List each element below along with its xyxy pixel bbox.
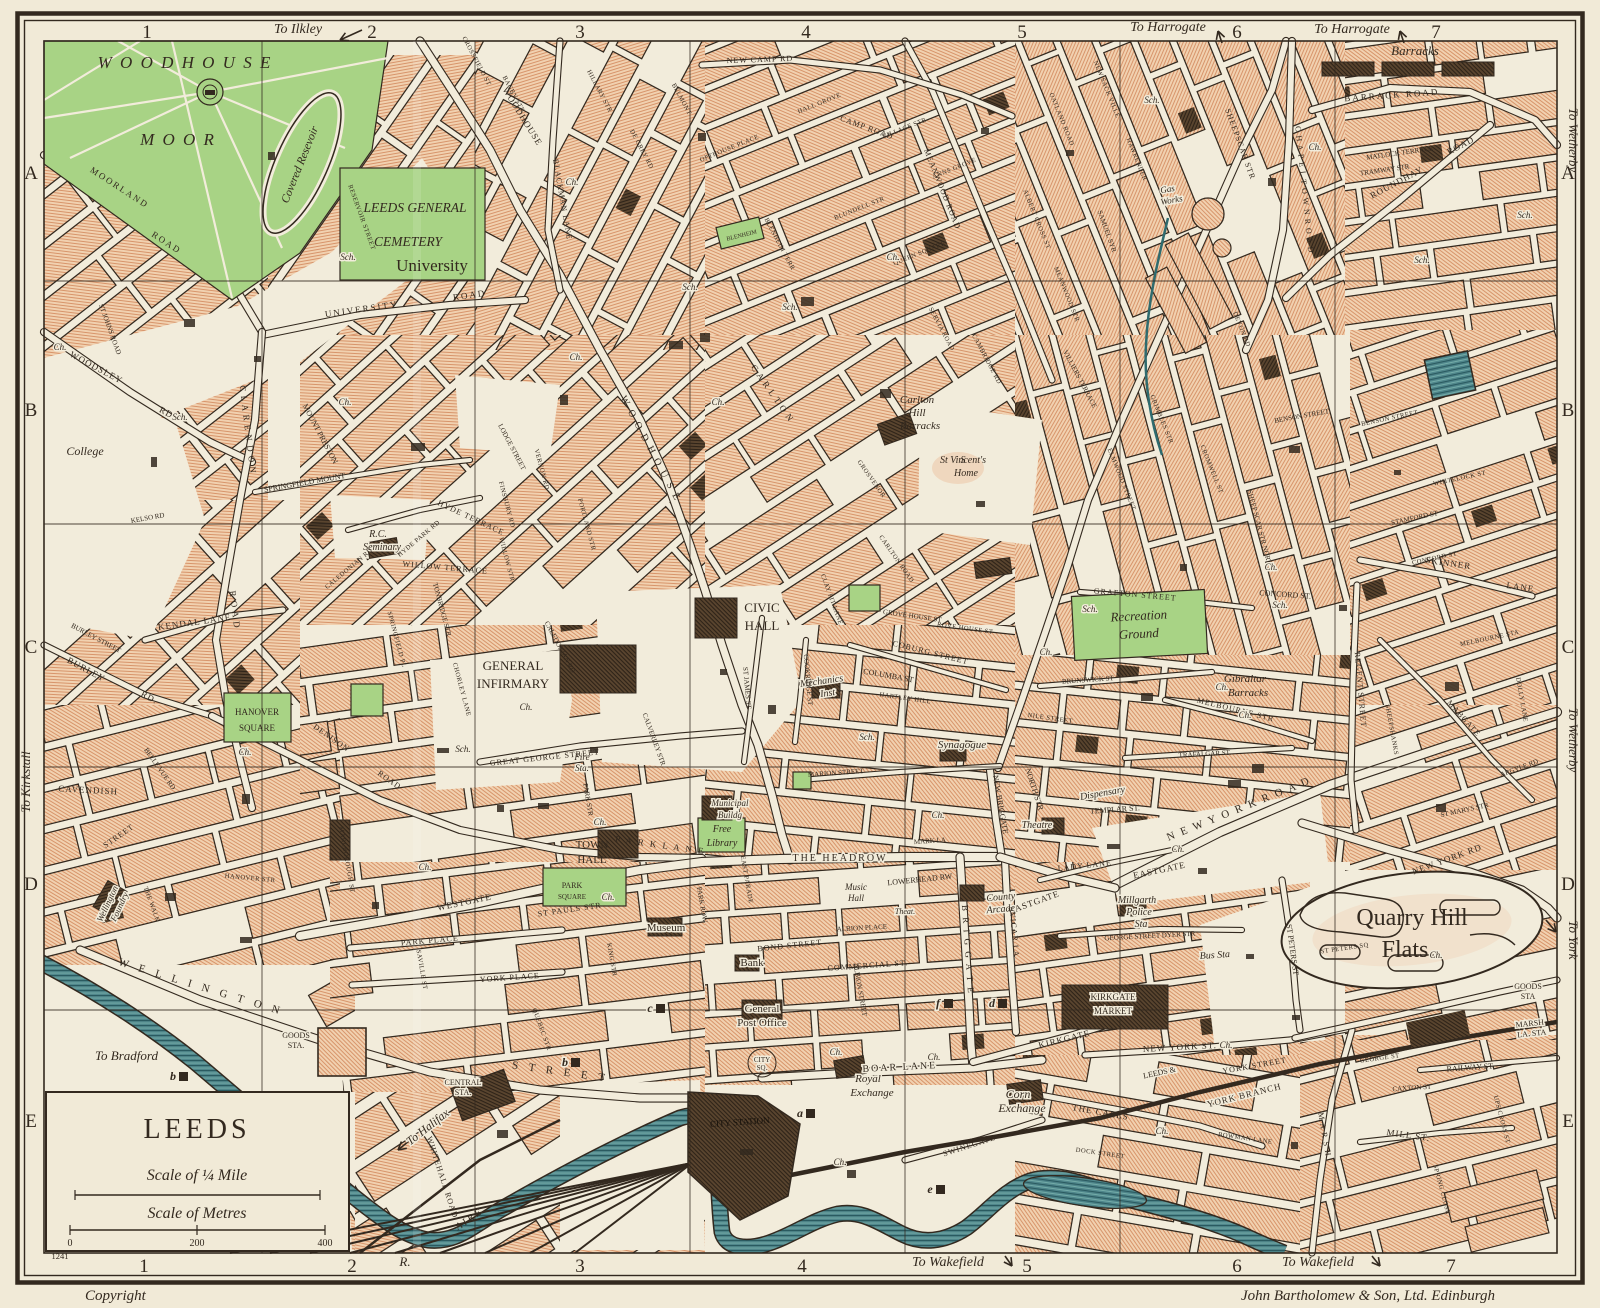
- svg-text:Ch.: Ch.: [1216, 682, 1229, 692]
- svg-text:4: 4: [797, 1256, 807, 1277]
- svg-text:3: 3: [575, 1256, 585, 1277]
- svg-text:Royal: Royal: [854, 1073, 881, 1085]
- svg-text:200: 200: [190, 1238, 205, 1249]
- svg-text:CEMETERY: CEMETERY: [374, 234, 443, 249]
- svg-text:Ch.: Ch.: [887, 252, 900, 262]
- svg-text:Barracks: Barracks: [900, 420, 940, 432]
- svg-text:Scale of ¼ Mile: Scale of ¼ Mile: [147, 1167, 247, 1184]
- svg-text:Sch.: Sch.: [782, 302, 797, 312]
- svg-text:1241: 1241: [52, 1251, 69, 1261]
- svg-text:c: c: [647, 1001, 653, 1015]
- svg-text:D: D: [24, 874, 38, 895]
- svg-text:Sch.: Sch.: [340, 252, 355, 262]
- svg-text:Sch.: Sch.: [1082, 604, 1097, 614]
- svg-text:b: b: [562, 1055, 568, 1069]
- svg-text:1: 1: [139, 1256, 149, 1277]
- svg-text:B: B: [25, 400, 38, 421]
- svg-text:SQ.: SQ.: [757, 1064, 768, 1072]
- svg-text:Ch.: Ch.: [1239, 710, 1252, 720]
- svg-text:1: 1: [142, 22, 152, 43]
- svg-text:Ch.: Ch.: [339, 397, 352, 407]
- svg-text:E: E: [1562, 1111, 1574, 1132]
- svg-text:College: College: [66, 444, 104, 458]
- svg-text:a: a: [797, 1106, 803, 1120]
- svg-text:John Bartholomew & Son, Ltd. E: John Bartholomew & Son, Ltd. Edinburgh: [1241, 1288, 1495, 1304]
- svg-text:To Harrogate: To Harrogate: [1130, 20, 1206, 35]
- svg-text:e: e: [927, 1182, 933, 1196]
- svg-text:Ch.: Ch.: [239, 747, 252, 757]
- svg-text:CIVIC: CIVIC: [744, 600, 779, 615]
- svg-text:Bus Sta: Bus Sta: [1199, 949, 1230, 962]
- svg-text:GOODS: GOODS: [282, 1031, 310, 1040]
- svg-text:400: 400: [318, 1238, 333, 1249]
- svg-text:To Wetherby: To Wetherby: [1566, 108, 1581, 173]
- svg-text:Corn: Corn: [1006, 1087, 1031, 1101]
- svg-text:Ch.: Ch.: [830, 1047, 843, 1057]
- svg-text:To Wetherby: To Wetherby: [1566, 708, 1581, 773]
- svg-text:Ch.: Ch.: [928, 1052, 941, 1062]
- svg-text:5: 5: [1022, 1256, 1032, 1277]
- svg-text:Sta.: Sta.: [575, 763, 589, 773]
- svg-text:Ch.: Ch.: [520, 702, 533, 712]
- svg-text:LEEDS GENERAL: LEEDS GENERAL: [362, 200, 466, 215]
- svg-text:Ch.: Ch.: [1220, 1040, 1233, 1050]
- svg-text:CENTRAL: CENTRAL: [445, 1078, 482, 1087]
- svg-text:2: 2: [367, 22, 377, 43]
- svg-text:Post Office: Post Office: [737, 1017, 787, 1029]
- svg-text:Scale of Metres: Scale of Metres: [148, 1205, 247, 1222]
- svg-text:6: 6: [1232, 1256, 1242, 1277]
- svg-text:HALL: HALL: [577, 854, 607, 866]
- svg-text:Sch.: Sch.: [1414, 255, 1429, 265]
- svg-text:0: 0: [68, 1238, 73, 1249]
- svg-text:Home: Home: [953, 468, 978, 479]
- svg-text:B: B: [1562, 400, 1575, 421]
- svg-text:STA: STA: [1521, 992, 1536, 1001]
- svg-text:Ch.: Ch.: [1265, 562, 1278, 572]
- svg-text:C: C: [1562, 637, 1575, 658]
- svg-text:Gibraltar: Gibraltar: [1224, 673, 1267, 685]
- svg-text:Ch.: Ch.: [1309, 142, 1322, 152]
- svg-text:Ch.: Ch.: [594, 817, 607, 827]
- svg-text:Inst: Inst: [818, 687, 836, 700]
- svg-text:Ch.: Ch.: [566, 177, 579, 187]
- svg-text:5: 5: [1017, 22, 1027, 43]
- svg-text:Hill: Hill: [907, 407, 925, 419]
- svg-text:R.: R.: [398, 1254, 410, 1269]
- svg-text:CITY: CITY: [754, 1056, 770, 1064]
- svg-text:Ch.: Ch.: [834, 1157, 847, 1167]
- svg-text:MARKET: MARKET: [1094, 1006, 1133, 1016]
- svg-text:7: 7: [1446, 1256, 1456, 1277]
- svg-text:7: 7: [1431, 22, 1441, 43]
- svg-text:Sta: Sta: [1135, 919, 1148, 930]
- svg-text:Ch.: Ch.: [54, 342, 67, 352]
- svg-text:TOWN: TOWN: [576, 839, 609, 851]
- svg-text:Library: Library: [706, 838, 738, 849]
- svg-text:Barracks: Barracks: [1228, 687, 1268, 699]
- svg-text:To Wakefield: To Wakefield: [912, 1255, 985, 1270]
- svg-text:D: D: [1561, 874, 1575, 895]
- svg-text:Exchange: Exchange: [997, 1101, 1046, 1115]
- svg-text:SQUARE: SQUARE: [558, 893, 586, 901]
- svg-text:INFIRMARY: INFIRMARY: [477, 676, 550, 691]
- svg-text:Carlton: Carlton: [900, 394, 935, 406]
- svg-text:Ch.: Ch.: [932, 810, 945, 820]
- svg-text:M O O R: M O O R: [139, 130, 216, 149]
- svg-text:HANOVER: HANOVER: [235, 707, 279, 717]
- svg-text:E: E: [25, 1111, 37, 1132]
- svg-text:SQUARE: SQUARE: [239, 723, 276, 733]
- svg-text:Free: Free: [712, 824, 732, 835]
- svg-text:St Vincent's: St Vincent's: [940, 455, 986, 466]
- svg-text:Synagogue: Synagogue: [938, 739, 986, 751]
- svg-text:Ch.: Ch.: [1040, 647, 1053, 657]
- svg-text:Sch.: Sch.: [682, 282, 697, 292]
- svg-text:Ch.: Ch.: [1430, 950, 1443, 960]
- svg-text:Bank: Bank: [740, 957, 764, 969]
- svg-text:6: 6: [1232, 22, 1242, 43]
- svg-text:Exchange: Exchange: [849, 1087, 893, 1099]
- svg-text:A: A: [24, 163, 38, 184]
- svg-text:Ground: Ground: [1118, 625, 1159, 642]
- svg-text:Ch.: Ch.: [419, 862, 432, 872]
- svg-text:Theatre: Theatre: [1022, 820, 1053, 831]
- svg-text:STA.: STA.: [455, 1088, 471, 1097]
- svg-text:b: b: [170, 1069, 176, 1083]
- svg-text:Sch.: Sch.: [1272, 600, 1287, 610]
- svg-text:Sch.: Sch.: [1517, 210, 1532, 220]
- svg-text:Ch.: Ch.: [602, 892, 615, 902]
- svg-text:Barracks: Barracks: [1391, 43, 1439, 58]
- svg-text:Flats: Flats: [1382, 937, 1429, 963]
- svg-text:Recreation: Recreation: [1109, 607, 1167, 625]
- svg-text:Municipal: Municipal: [711, 798, 749, 808]
- svg-text:Quarry Hill: Quarry Hill: [1356, 905, 1468, 931]
- svg-text:LEEDS: LEEDS: [143, 1114, 250, 1145]
- svg-text:Ch.: Ch.: [1172, 844, 1185, 854]
- svg-text:Sch.: Sch.: [172, 412, 187, 422]
- svg-text:PARK: PARK: [562, 881, 583, 890]
- svg-text:Police: Police: [1125, 907, 1152, 918]
- svg-text:4: 4: [801, 22, 811, 43]
- svg-text:W O O D H O U S E: W O O D H O U S E: [98, 53, 273, 72]
- svg-text:To Kirkstall: To Kirkstall: [18, 751, 33, 813]
- svg-text:General: General: [745, 1003, 780, 1015]
- svg-text:2: 2: [347, 1256, 357, 1277]
- svg-text:To Bradford: To Bradford: [95, 1048, 158, 1063]
- svg-text:To York: To York: [1566, 920, 1581, 959]
- svg-text:Buildg: Buildg: [718, 810, 742, 820]
- svg-text:GENERAL: GENERAL: [483, 658, 544, 673]
- svg-text:3: 3: [575, 22, 585, 43]
- svg-text:Copyright: Copyright: [85, 1288, 147, 1304]
- svg-text:To Harrogate: To Harrogate: [1314, 22, 1390, 37]
- svg-text:Sch.: Sch.: [455, 744, 470, 754]
- svg-text:Sch.: Sch.: [859, 732, 874, 742]
- svg-text:Hall: Hall: [847, 893, 865, 903]
- svg-text:Ch.: Ch.: [712, 397, 725, 407]
- svg-text:STA.: STA.: [288, 1041, 304, 1050]
- svg-text:To Ilkley: To Ilkley: [274, 22, 323, 37]
- svg-text:HALL: HALL: [745, 618, 780, 633]
- svg-text:Music: Music: [844, 882, 867, 892]
- svg-text:d: d: [989, 996, 996, 1010]
- svg-text:Theat.: Theat.: [895, 907, 915, 916]
- svg-text:University: University: [396, 256, 468, 275]
- svg-text:Ch.: Ch.: [1156, 1126, 1169, 1136]
- svg-text:THE HEADROW: THE HEADROW: [792, 853, 887, 864]
- svg-text:Millgarth: Millgarth: [1117, 895, 1156, 906]
- svg-text:To Wakefield: To Wakefield: [1282, 1255, 1355, 1270]
- svg-text:Museum: Museum: [647, 922, 686, 934]
- svg-text:Ch.: Ch.: [570, 352, 583, 362]
- svg-text:GOODS: GOODS: [1514, 982, 1542, 991]
- svg-text:R.C.: R.C.: [368, 529, 387, 540]
- svg-text:C: C: [25, 637, 38, 658]
- svg-text:Sch.: Sch.: [1144, 95, 1159, 105]
- svg-text:KIRKGATE: KIRKGATE: [1091, 992, 1136, 1002]
